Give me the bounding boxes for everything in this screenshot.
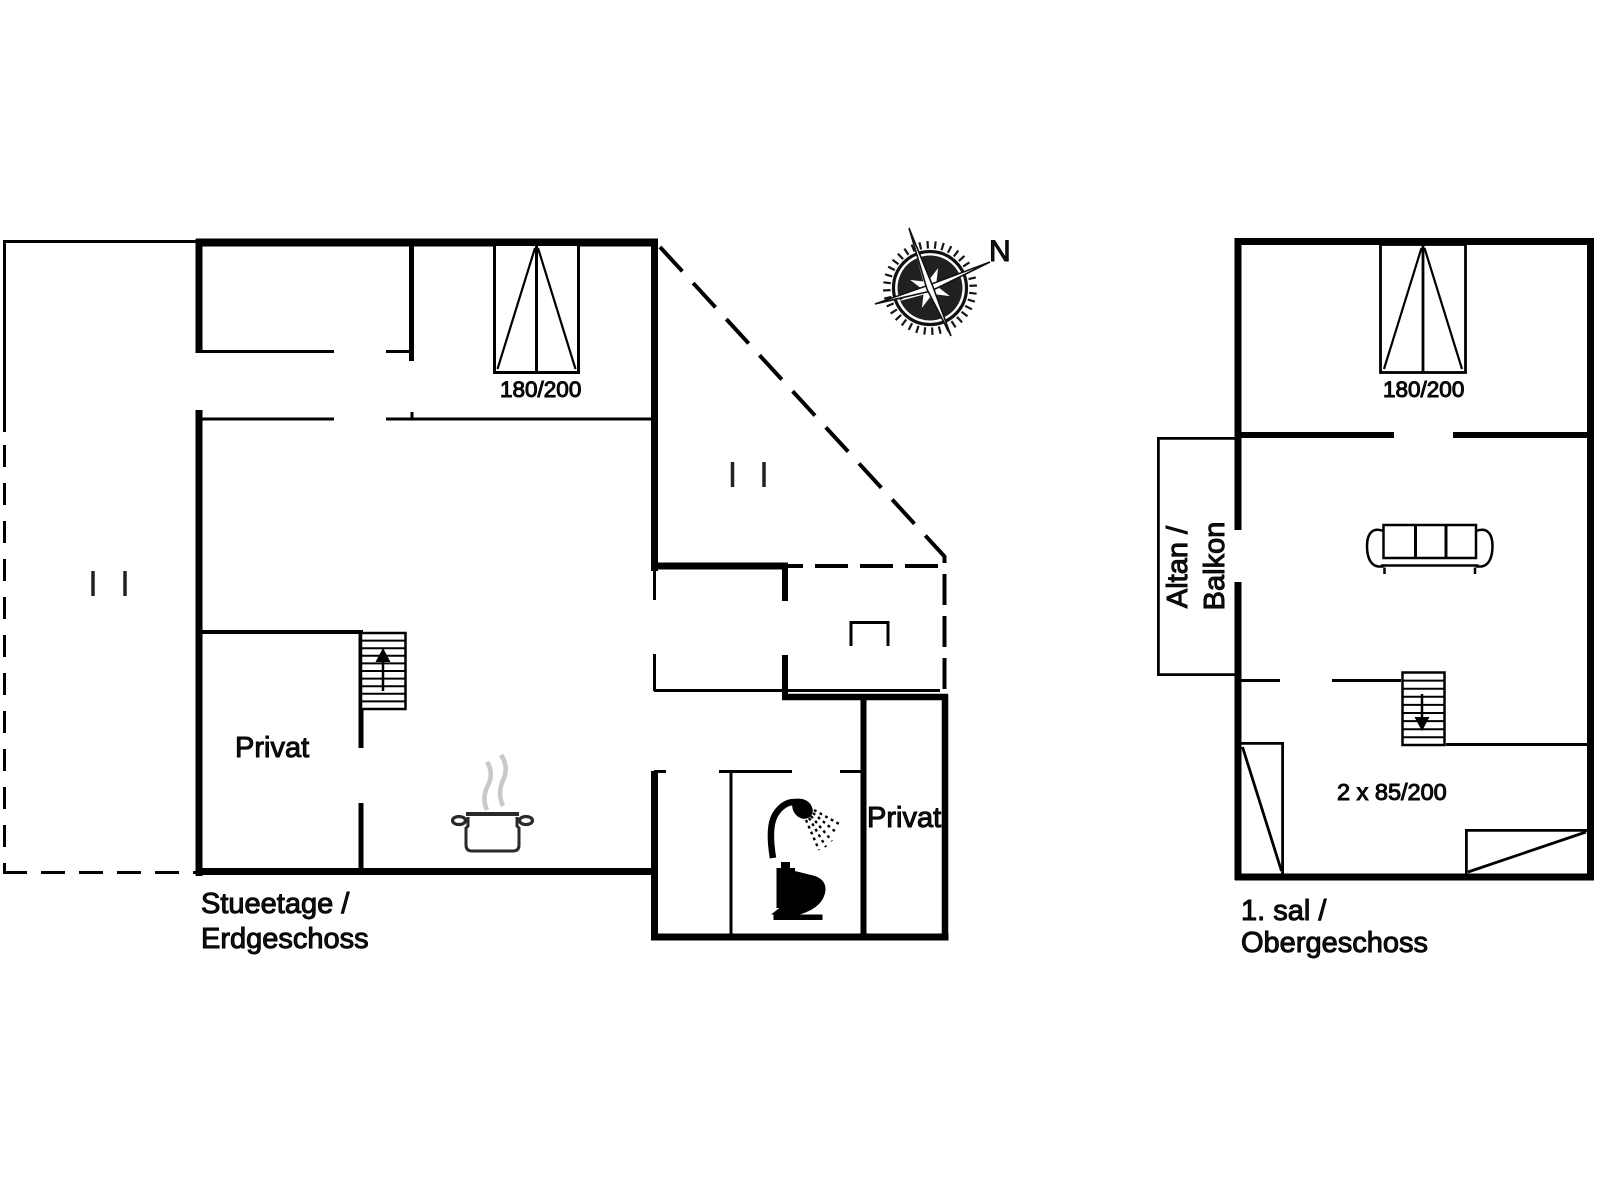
svg-text:Privat: Privat (235, 732, 309, 764)
svg-text:2 x 85/200: 2 x 85/200 (1337, 779, 1447, 805)
svg-text:N: N (989, 235, 1011, 268)
svg-text:180/200: 180/200 (1383, 377, 1464, 402)
svg-text:180/200: 180/200 (500, 377, 581, 402)
svg-text:Altan /: Altan / (1162, 525, 1194, 608)
svg-text:Stueetage /: Stueetage / (201, 888, 350, 920)
svg-text:Balkon: Balkon (1199, 522, 1231, 611)
svg-text:Erdgeschoss: Erdgeschoss (201, 923, 369, 955)
svg-text:Obergeschoss: Obergeschoss (1241, 927, 1428, 959)
svg-text:Privat: Privat (867, 802, 941, 834)
svg-text:1. sal /: 1. sal / (1241, 895, 1327, 927)
